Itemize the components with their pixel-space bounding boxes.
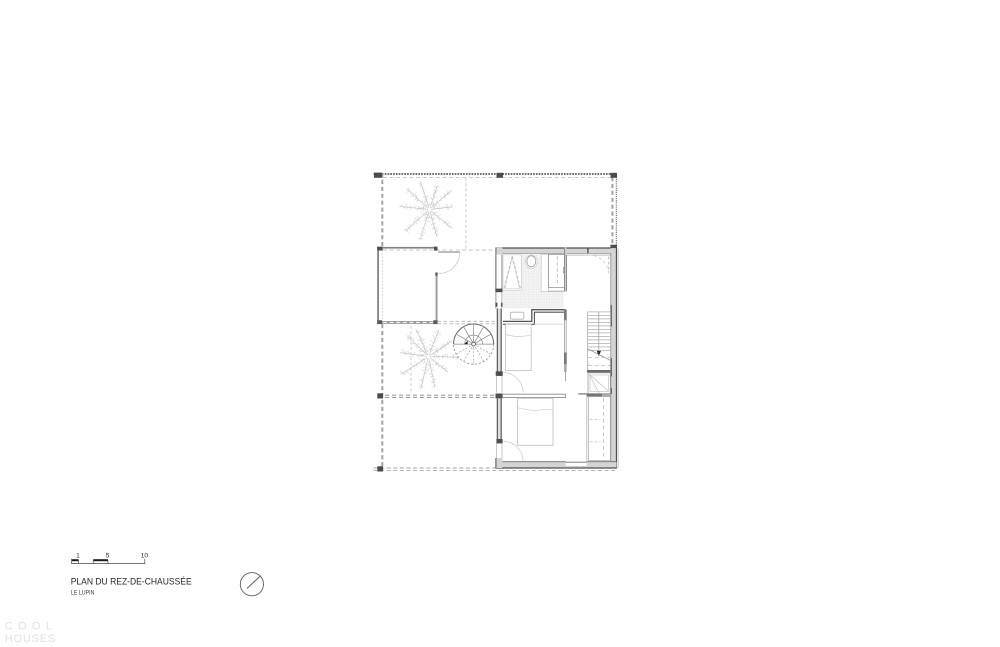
svg-text:LE LUPIN: LE LUPIN	[71, 590, 95, 597]
svg-text:10: 10	[141, 552, 149, 559]
svg-text:HOUSES: HOUSES	[5, 633, 56, 645]
svg-text:1: 1	[76, 552, 80, 559]
svg-text:PLAN DU REZ-DE-CHAUSSÉE: PLAN DU REZ-DE-CHAUSSÉE	[71, 576, 192, 587]
svg-text:COOL: COOL	[5, 620, 57, 632]
svg-text:5: 5	[106, 552, 110, 559]
